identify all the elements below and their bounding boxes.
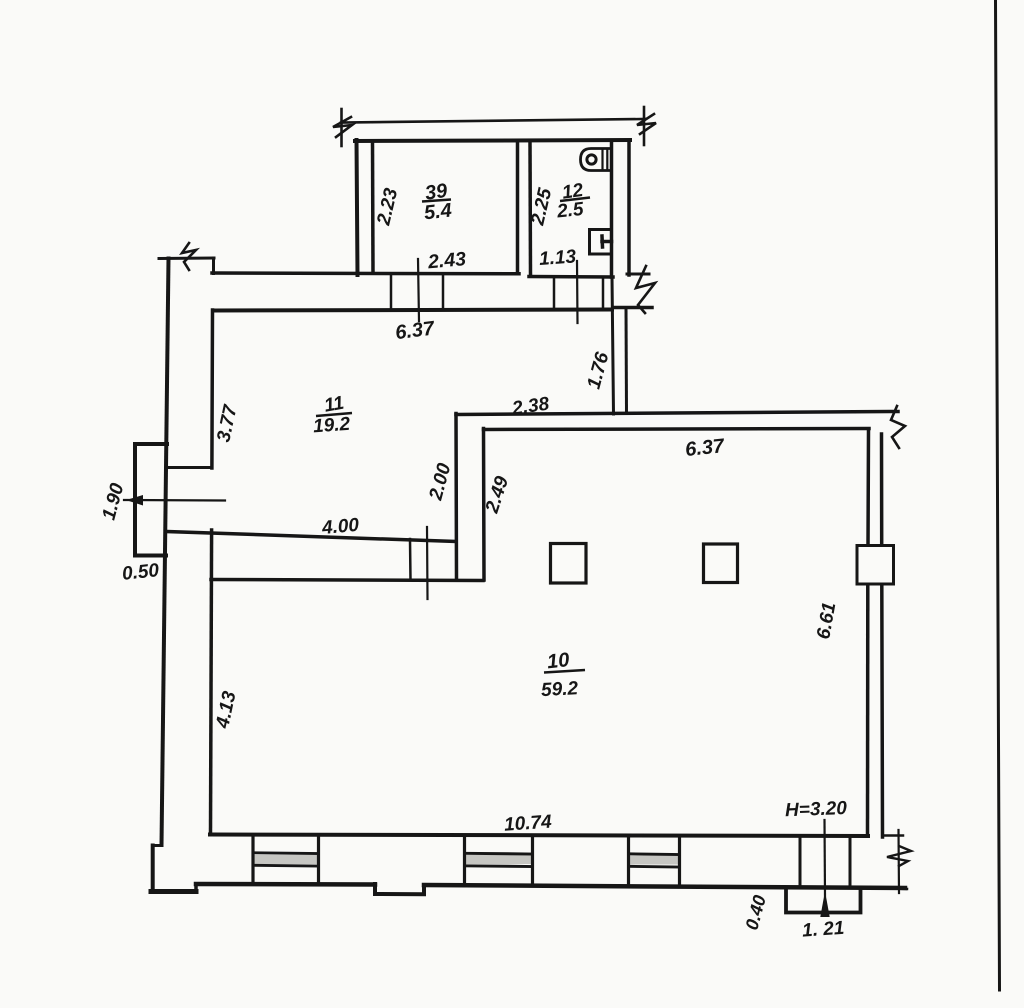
svg-text:H=3.20: H=3.20 <box>785 798 848 821</box>
svg-text:2.5: 2.5 <box>555 199 585 223</box>
svg-text:4.00: 4.00 <box>320 515 360 539</box>
svg-text:1. 21: 1. 21 <box>801 918 845 942</box>
svg-text:59.2: 59.2 <box>541 678 579 701</box>
svg-text:5.4: 5.4 <box>423 200 453 225</box>
svg-text:6.37: 6.37 <box>684 435 726 461</box>
svg-text:0.50: 0.50 <box>121 560 160 585</box>
svg-text:2.43: 2.43 <box>426 248 467 273</box>
svg-text:10: 10 <box>546 649 570 673</box>
svg-text:10.74: 10.74 <box>503 811 552 835</box>
svg-text:19.2: 19.2 <box>312 414 351 438</box>
svg-text:1.13: 1.13 <box>538 246 577 270</box>
